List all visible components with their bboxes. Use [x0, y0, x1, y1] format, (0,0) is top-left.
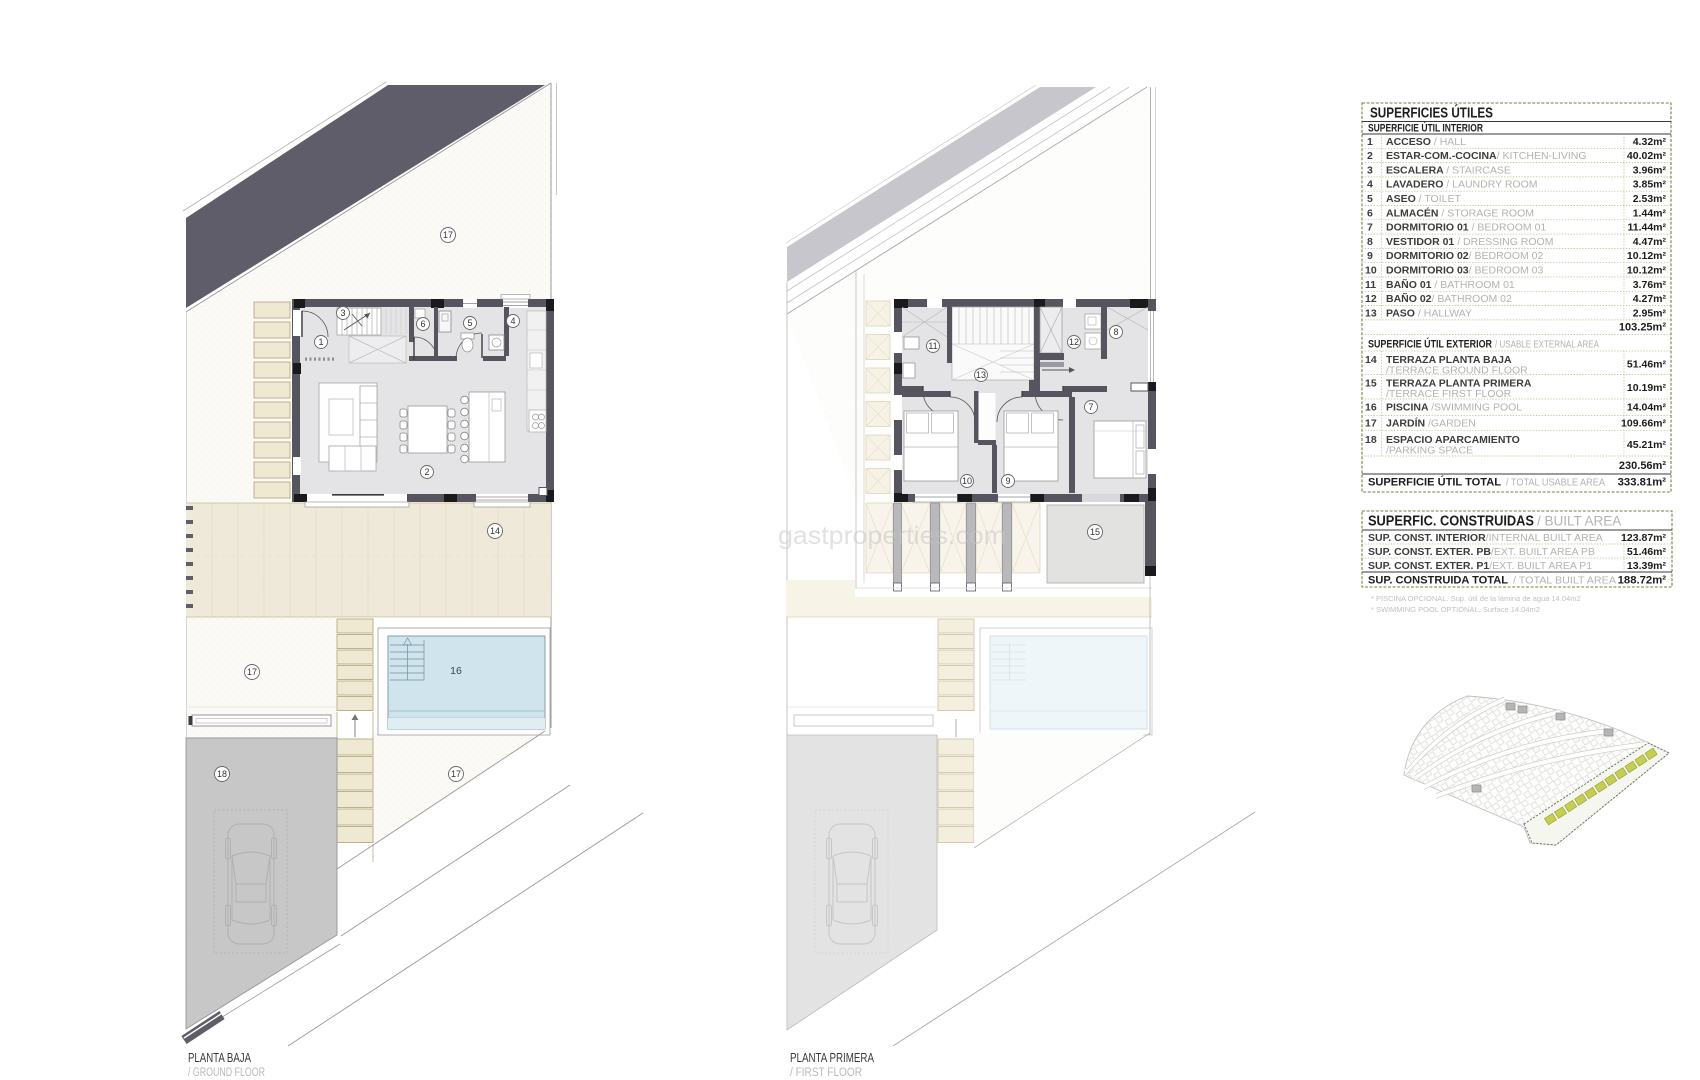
- svg-text:DORMITORIO 03/ BEDROOM 03: DORMITORIO 03/ BEDROOM 03: [1386, 265, 1544, 277]
- svg-text:3: 3: [1367, 164, 1373, 176]
- svg-text:17: 17: [451, 769, 461, 779]
- svg-text:10.19m²: 10.19m²: [1627, 382, 1667, 394]
- svg-text:SUPERFIC. CONSTRUIDAS: SUPERFIC. CONSTRUIDAS: [1368, 514, 1534, 530]
- svg-text:8: 8: [1113, 327, 1118, 337]
- svg-text:11.44m²: 11.44m²: [1627, 222, 1666, 234]
- svg-text:17: 17: [443, 230, 453, 240]
- svg-text:/ USABLE EXTERNAL AREA: / USABLE EXTERNAL AREA: [1495, 340, 1599, 351]
- svg-text:12: 12: [1069, 337, 1079, 347]
- svg-text:13: 13: [1365, 307, 1377, 319]
- svg-text:SUPERFICIE ÚTIL INTERIOR: SUPERFICIE ÚTIL INTERIOR: [1368, 122, 1483, 135]
- svg-text:ASEO / TOILET: ASEO / TOILET: [1386, 193, 1461, 205]
- svg-text:14: 14: [1365, 354, 1377, 366]
- svg-text:18: 18: [217, 769, 227, 779]
- svg-text:4.32m²: 4.32m²: [1633, 136, 1667, 148]
- svg-text:4: 4: [1367, 179, 1373, 191]
- svg-text:17: 17: [1365, 418, 1377, 430]
- svg-text:* SWIMMING POOL OPTIONAL. Surf: * SWIMMING POOL OPTIONAL. Surface 14.04m…: [1371, 605, 1540, 614]
- svg-text:2: 2: [424, 467, 429, 477]
- svg-text:11: 11: [928, 341, 937, 351]
- svg-text:13: 13: [976, 370, 986, 380]
- svg-text:9: 9: [1367, 250, 1373, 262]
- svg-text:123.87m²: 123.87m²: [1621, 532, 1666, 544]
- svg-text:103.25m²: 103.25m²: [1619, 322, 1666, 334]
- svg-text:6: 6: [1367, 207, 1373, 219]
- svg-text:BAÑO 02/ BATHROOM 02: BAÑO 02/ BATHROOM 02: [1386, 292, 1512, 305]
- svg-text:VESTIDOR 01 / DRESSING ROOM: VESTIDOR 01 / DRESSING ROOM: [1386, 236, 1553, 248]
- svg-text:40.02m²: 40.02m²: [1627, 150, 1667, 162]
- svg-text:109.66m²: 109.66m²: [1621, 418, 1666, 430]
- svg-text:PASO / HALLWAY: PASO / HALLWAY: [1386, 307, 1472, 319]
- svg-text:10: 10: [962, 476, 972, 486]
- svg-text:SUP. CONST. EXTER. P1/EXT. BUI: SUP. CONST. EXTER. P1/EXT. BUILT AREA P1: [1368, 560, 1592, 572]
- svg-text:51.46m²: 51.46m²: [1627, 546, 1667, 558]
- svg-text:5: 5: [467, 318, 472, 328]
- svg-text:4: 4: [510, 316, 515, 326]
- svg-text:SUPERFICIES ÚTILES: SUPERFICIES ÚTILES: [1370, 104, 1493, 122]
- svg-text:DORMITORIO 01 / BEDROOM 01: DORMITORIO 01 / BEDROOM 01: [1386, 222, 1546, 234]
- svg-text:DORMITORIO 02/ BEDROOM 02: DORMITORIO 02/ BEDROOM 02: [1386, 250, 1544, 262]
- svg-text:4.27m²: 4.27m²: [1633, 293, 1667, 305]
- svg-text:12: 12: [1365, 293, 1377, 305]
- svg-text:8: 8: [1367, 236, 1373, 248]
- svg-text:SUPERFICIE ÚTIL TOTAL: SUPERFICIE ÚTIL TOTAL: [1368, 476, 1501, 489]
- svg-text:6: 6: [420, 319, 425, 329]
- svg-text:/PARKING SPACE: /PARKING SPACE: [1386, 445, 1473, 457]
- svg-text:1: 1: [1367, 136, 1373, 148]
- svg-text:15: 15: [1365, 378, 1377, 390]
- svg-text:2.95m²: 2.95m²: [1633, 307, 1667, 319]
- svg-text:45.21m²: 45.21m²: [1627, 439, 1667, 451]
- svg-text:333.81m²: 333.81m²: [1618, 477, 1667, 489]
- svg-text:/TERRACE FIRST FLOOR: /TERRACE FIRST FLOOR: [1386, 388, 1512, 400]
- svg-text:51.46m²: 51.46m²: [1627, 359, 1667, 371]
- svg-text:3.76m²: 3.76m²: [1633, 279, 1667, 291]
- svg-text:2: 2: [1367, 150, 1373, 162]
- svg-text:14.04m²: 14.04m²: [1627, 402, 1667, 414]
- svg-text:gastproperties.com: gastproperties.com: [778, 522, 1006, 550]
- svg-text:SUP. CONST. INTERIOR/INTERNAL: SUP. CONST. INTERIOR/INTERNAL BUILT AREA: [1368, 532, 1603, 544]
- svg-text:5: 5: [1367, 193, 1373, 205]
- svg-text:SUPERFICIE ÚTIL EXTERIOR: SUPERFICIE ÚTIL EXTERIOR: [1368, 338, 1492, 351]
- svg-text:14: 14: [490, 526, 500, 536]
- svg-text:16: 16: [1365, 402, 1377, 414]
- svg-text:18: 18: [1365, 434, 1377, 446]
- svg-text:11: 11: [1365, 279, 1376, 291]
- svg-text:10: 10: [1365, 265, 1377, 277]
- svg-text:ALMACÉN / STORAGE ROOM: ALMACÉN / STORAGE ROOM: [1386, 206, 1534, 219]
- svg-text:LAVADERO / LAUNDRY ROOM: LAVADERO / LAUNDRY ROOM: [1386, 179, 1538, 191]
- svg-text:PISCINA /SWIMMING POOL: PISCINA /SWIMMING POOL: [1386, 402, 1522, 414]
- svg-text:1.44m²: 1.44m²: [1633, 207, 1667, 219]
- svg-text:BAÑO 01 / BATHROOM 01: BAÑO 01 / BATHROOM 01: [1386, 278, 1515, 291]
- svg-text:/ BUILT AREA: / BUILT AREA: [1537, 514, 1621, 529]
- svg-text:3: 3: [340, 308, 345, 318]
- svg-text:7: 7: [1088, 402, 1093, 412]
- svg-text:10.12m²: 10.12m²: [1627, 265, 1667, 277]
- svg-text:10.12m²: 10.12m²: [1627, 250, 1667, 262]
- svg-text:PLANTA PRIMERA: PLANTA PRIMERA: [790, 1050, 874, 1065]
- svg-text:7: 7: [1367, 222, 1373, 234]
- svg-text:4.47m²: 4.47m²: [1633, 236, 1667, 248]
- svg-text:/TERRACE GROUND FLOOR: /TERRACE GROUND FLOOR: [1386, 365, 1528, 377]
- svg-text:9: 9: [1005, 476, 1010, 486]
- svg-text:ACCESO / HALL: ACCESO / HALL: [1386, 136, 1466, 148]
- svg-text:PLANTA BAJA: PLANTA BAJA: [188, 1050, 251, 1065]
- svg-text:/ GROUND FLOOR: / GROUND FLOOR: [188, 1067, 265, 1079]
- svg-text:13.39m²: 13.39m²: [1627, 560, 1667, 572]
- svg-text:17: 17: [247, 667, 257, 677]
- svg-text:SUP. CONST. EXTER. PB/EXT. BUI: SUP. CONST. EXTER. PB/EXT. BUILT AREA PB: [1368, 546, 1595, 558]
- svg-text:3.96m²: 3.96m²: [1633, 164, 1667, 176]
- svg-text:SUP. CONSTRUIDA TOTAL: SUP. CONSTRUIDA TOTAL: [1368, 575, 1508, 587]
- svg-text:16: 16: [450, 665, 462, 677]
- svg-text:2.53m²: 2.53m²: [1633, 193, 1667, 205]
- svg-text:ESTAR-COM.-COCINA/ KITCHEN-LIV: ESTAR-COM.-COCINA/ KITCHEN-LIVING: [1386, 150, 1587, 162]
- svg-text:JARDÍN /GARDEN: JARDÍN /GARDEN: [1386, 417, 1476, 430]
- svg-text:230.56m²: 230.56m²: [1619, 460, 1666, 472]
- svg-text:* PISCINA OPCIONAL. Sup. útil: * PISCINA OPCIONAL. Sup. útil de la lámi…: [1371, 594, 1581, 603]
- svg-text:/ TOTAL USABLE AREA: / TOTAL USABLE AREA: [1506, 477, 1605, 489]
- svg-text:15: 15: [1090, 527, 1100, 537]
- svg-text:1: 1: [318, 337, 323, 347]
- svg-text:188.72m²: 188.72m²: [1618, 575, 1667, 587]
- svg-text:ESCALERA / STAIRCASE: ESCALERA / STAIRCASE: [1386, 164, 1511, 176]
- svg-text:3.85m²: 3.85m²: [1633, 179, 1667, 191]
- svg-text:/ TOTAL BUILT AREA: / TOTAL BUILT AREA: [1513, 575, 1616, 587]
- svg-text:/ FIRST FLOOR: / FIRST FLOOR: [790, 1067, 862, 1079]
